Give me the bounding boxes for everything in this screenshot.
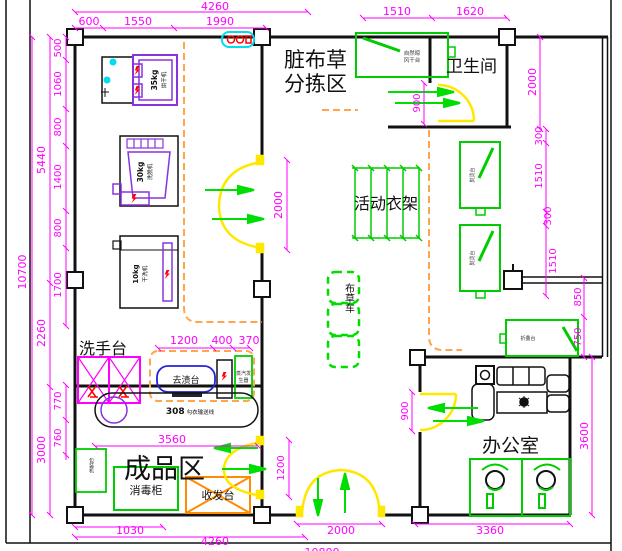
washstand-sinks [78, 357, 140, 403]
ironing-table-2: 熨烫台 [460, 225, 500, 298]
dim-top-1550: 1550 [124, 15, 152, 28]
dim-door-1200: 1200 [276, 455, 287, 480]
dim-right-2000: 2000 [526, 68, 539, 96]
stain-removal-station: 去渍台 蒸汽发 生器 [157, 356, 252, 398]
dim-left-500: 500 [53, 38, 64, 57]
floor-plan-canvas: 35kg 烘干机 30kg 洗脱机 10kg 干洗机 去渍台 [0, 0, 622, 551]
drycleaner-label: 干洗机 [141, 265, 149, 282]
room-bathroom: 卫生间 [446, 57, 497, 77]
dim-left-770: 770 [53, 391, 64, 410]
packager: 包装机 [76, 449, 106, 492]
room-office: 办公室 [482, 435, 539, 457]
dim-1200: 1200 [170, 334, 198, 347]
garment-conveyor: 308勾衣输送线 [95, 393, 258, 427]
dim-right-1510a: 1510 [534, 163, 545, 188]
dim-right-1510b: 1510 [548, 248, 559, 273]
dim-bottom-4260: 4260 [201, 535, 229, 548]
dryer-35kg: 35kg 烘干机 [101, 55, 177, 105]
dim-top-1620: 1620 [456, 5, 484, 18]
wall-device [504, 264, 522, 289]
dim-top-4260: 4260 [201, 0, 229, 13]
washer-label: 洗脱机 [146, 163, 154, 180]
disinfection-cabinet-label: 消毒柜 [130, 483, 163, 497]
conveyor-label: 勾衣输送线 [187, 408, 215, 416]
dim-right-3600: 3600 [578, 422, 591, 450]
dim-top-1990: 1990 [206, 15, 234, 28]
dim-right-850: 850 [573, 287, 584, 306]
dim-door-900-bath: 900 [412, 93, 423, 112]
airdry-label-1: 自然晾 [404, 49, 421, 57]
ironing-table-1: 熨烫台 [460, 142, 500, 215]
airdry-table: 自然晾 风干台 [356, 33, 455, 77]
dim-left-800b: 800 [53, 218, 64, 237]
office-chairs [486, 471, 555, 490]
linen-carts: 布草车 [328, 272, 359, 367]
dim-400: 400 [212, 334, 233, 347]
room-washstand: 洗手台 [79, 339, 127, 358]
washer-capacity: 30kg [136, 162, 145, 183]
room-finished: 成品区 [124, 454, 205, 485]
dim-left-1700: 1700 [53, 272, 64, 297]
linen-cart-label: 布草车 [343, 283, 355, 314]
dim-left-3000: 3000 [35, 436, 48, 464]
dim-right-750: 750 [573, 327, 584, 346]
dim-370: 370 [239, 334, 260, 347]
steam-generator-label-2: 生器 [238, 377, 248, 384]
room-sorting-line1: 脏布草 [284, 48, 347, 72]
dimension-labels-left: 10700 5440 2260 3000 500 1060 800 1400 8… [16, 38, 64, 464]
washer-30kg: 30kg 洗脱机 [113, 136, 178, 206]
dim-left-760: 760 [53, 428, 64, 447]
floor-plan-drawing: 35kg 烘干机 30kg 洗脱机 10kg 干洗机 去渍台 [0, 0, 622, 551]
dim-right-300a: 300 [534, 126, 545, 145]
dim-left-1060: 1060 [53, 71, 64, 96]
drycleaner-10kg: 10kg 干洗机 [113, 236, 178, 308]
conveyor-model: 308 [166, 407, 185, 417]
dim-right-300b: 300 [543, 206, 554, 225]
dryer-label: 烘干机 [160, 71, 168, 88]
dim-top-600: 600 [79, 15, 100, 28]
room-rack: 活动衣架 [354, 194, 418, 213]
svg-text:308勾衣输送线: 308勾衣输送线 [166, 407, 215, 417]
stain-table-label: 去渍台 [172, 374, 199, 386]
dim-door-2000: 2000 [272, 191, 285, 219]
drycleaner-capacity: 10kg [132, 264, 140, 283]
dim-left-10700: 10700 [16, 255, 29, 290]
ironing-table-label: 熨烫台 [469, 167, 476, 182]
airdry-label-2: 风干台 [404, 56, 421, 64]
dim-bottom-10800: 10800 [305, 546, 340, 551]
steam-generator-label-1: 蒸汽发 [236, 370, 251, 377]
dim-left-800a: 800 [53, 117, 64, 136]
office-furniture [472, 366, 569, 420]
dim-bottom-1030: 1030 [116, 524, 144, 537]
dim-left-2260: 2260 [35, 319, 48, 347]
dim-3560: 3560 [158, 433, 186, 446]
dim-left-5440: 5440 [35, 146, 48, 174]
dim-top-1510: 1510 [383, 5, 411, 18]
dryer-capacity: 35kg [150, 70, 159, 91]
folding-table: 折叠台 [500, 320, 578, 356]
dim-bottom-3360: 3360 [476, 524, 504, 537]
control-sign [222, 32, 254, 47]
room-sorting-line2: 分拣区 [284, 72, 347, 96]
dim-bottom-2000: 2000 [327, 524, 355, 537]
dimension-labels-top: 4260 600 1550 1990 1510 1620 [79, 0, 485, 28]
ironing-table-label-2: 熨烫台 [469, 250, 476, 265]
dim-left-1400: 1400 [53, 164, 64, 189]
receiving-desk-label: 收发台 [202, 488, 235, 502]
folding-table-label: 折叠台 [520, 335, 535, 342]
dim-door-900-office: 900 [400, 401, 411, 420]
office-desks [470, 459, 570, 516]
packager-label: 包装机 [88, 457, 94, 474]
